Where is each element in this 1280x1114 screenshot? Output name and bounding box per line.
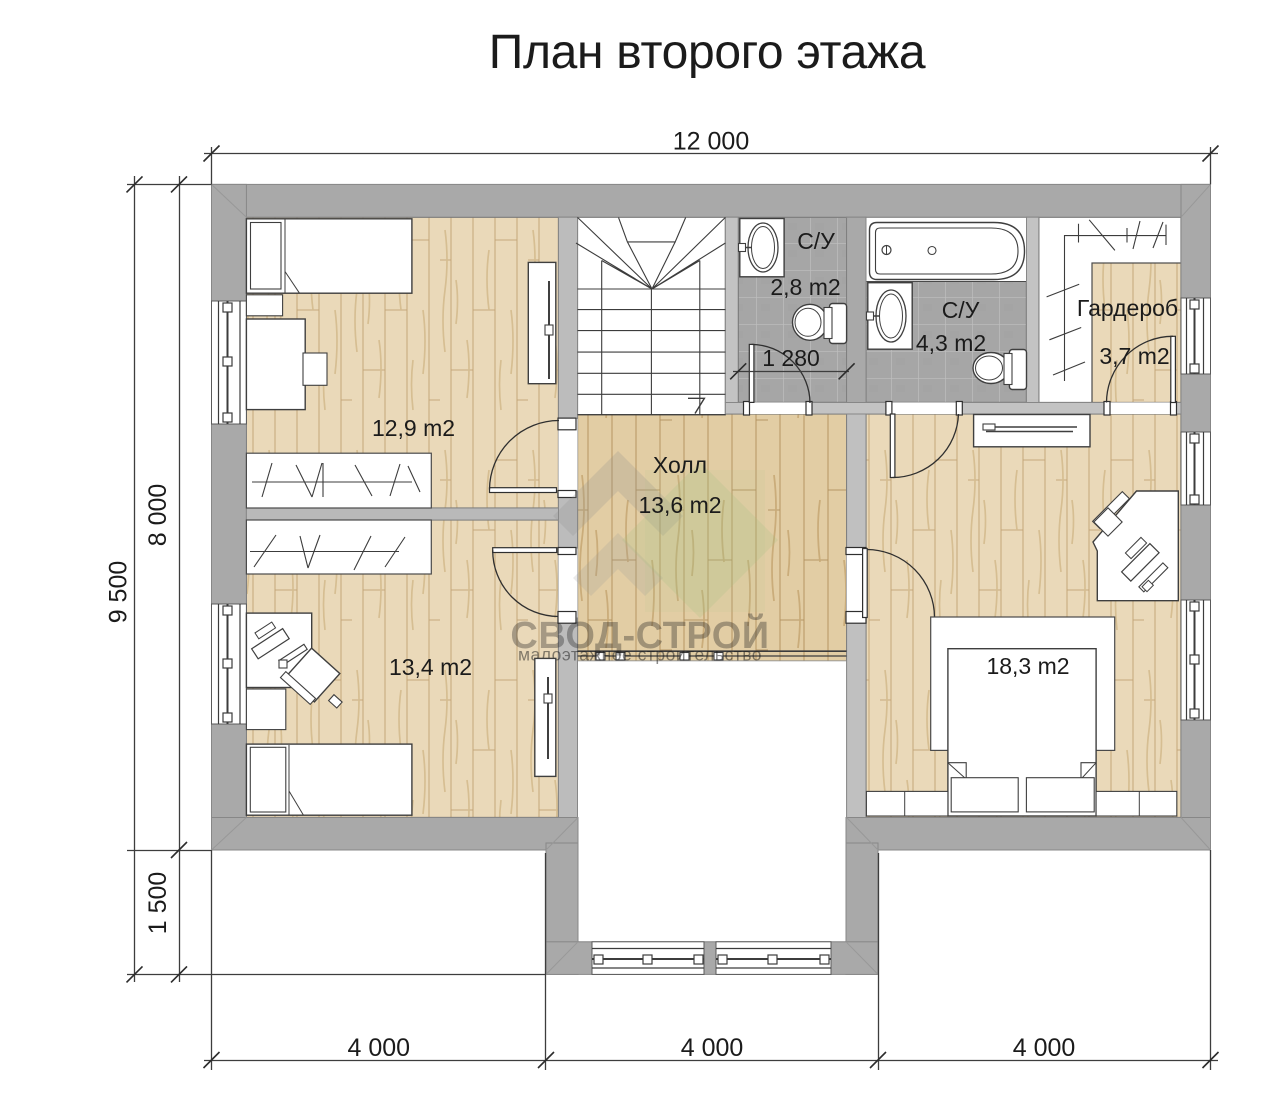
svg-text:План второго этажа: План второго этажа — [489, 26, 926, 79]
svg-text:12,9 m2: 12,9 m2 — [372, 415, 455, 441]
svg-text:9 500: 9 500 — [104, 561, 132, 624]
svg-text:Гардероб: Гардероб — [1077, 295, 1178, 321]
svg-text:1 280: 1 280 — [762, 345, 820, 371]
svg-text:8 000: 8 000 — [144, 484, 172, 547]
svg-text:1 500: 1 500 — [144, 872, 172, 935]
svg-text:4,3 m2: 4,3 m2 — [916, 330, 986, 356]
svg-text:12 000: 12 000 — [673, 128, 749, 156]
svg-text:Холл: Холл — [653, 452, 707, 478]
svg-text:18,3 m2: 18,3 m2 — [986, 653, 1069, 679]
svg-text:4 000: 4 000 — [1013, 1034, 1076, 1062]
svg-text:4 000: 4 000 — [348, 1034, 411, 1062]
svg-text:3,7 m2: 3,7 m2 — [1099, 343, 1169, 369]
svg-text:13,4 m2: 13,4 m2 — [389, 654, 472, 680]
svg-text:2,8 m2: 2,8 m2 — [770, 274, 840, 300]
svg-text:С/У: С/У — [942, 297, 980, 323]
svg-text:4 000: 4 000 — [681, 1034, 744, 1062]
svg-text:С/У: С/У — [797, 228, 835, 254]
svg-text:13,6 m2: 13,6 m2 — [638, 492, 721, 518]
